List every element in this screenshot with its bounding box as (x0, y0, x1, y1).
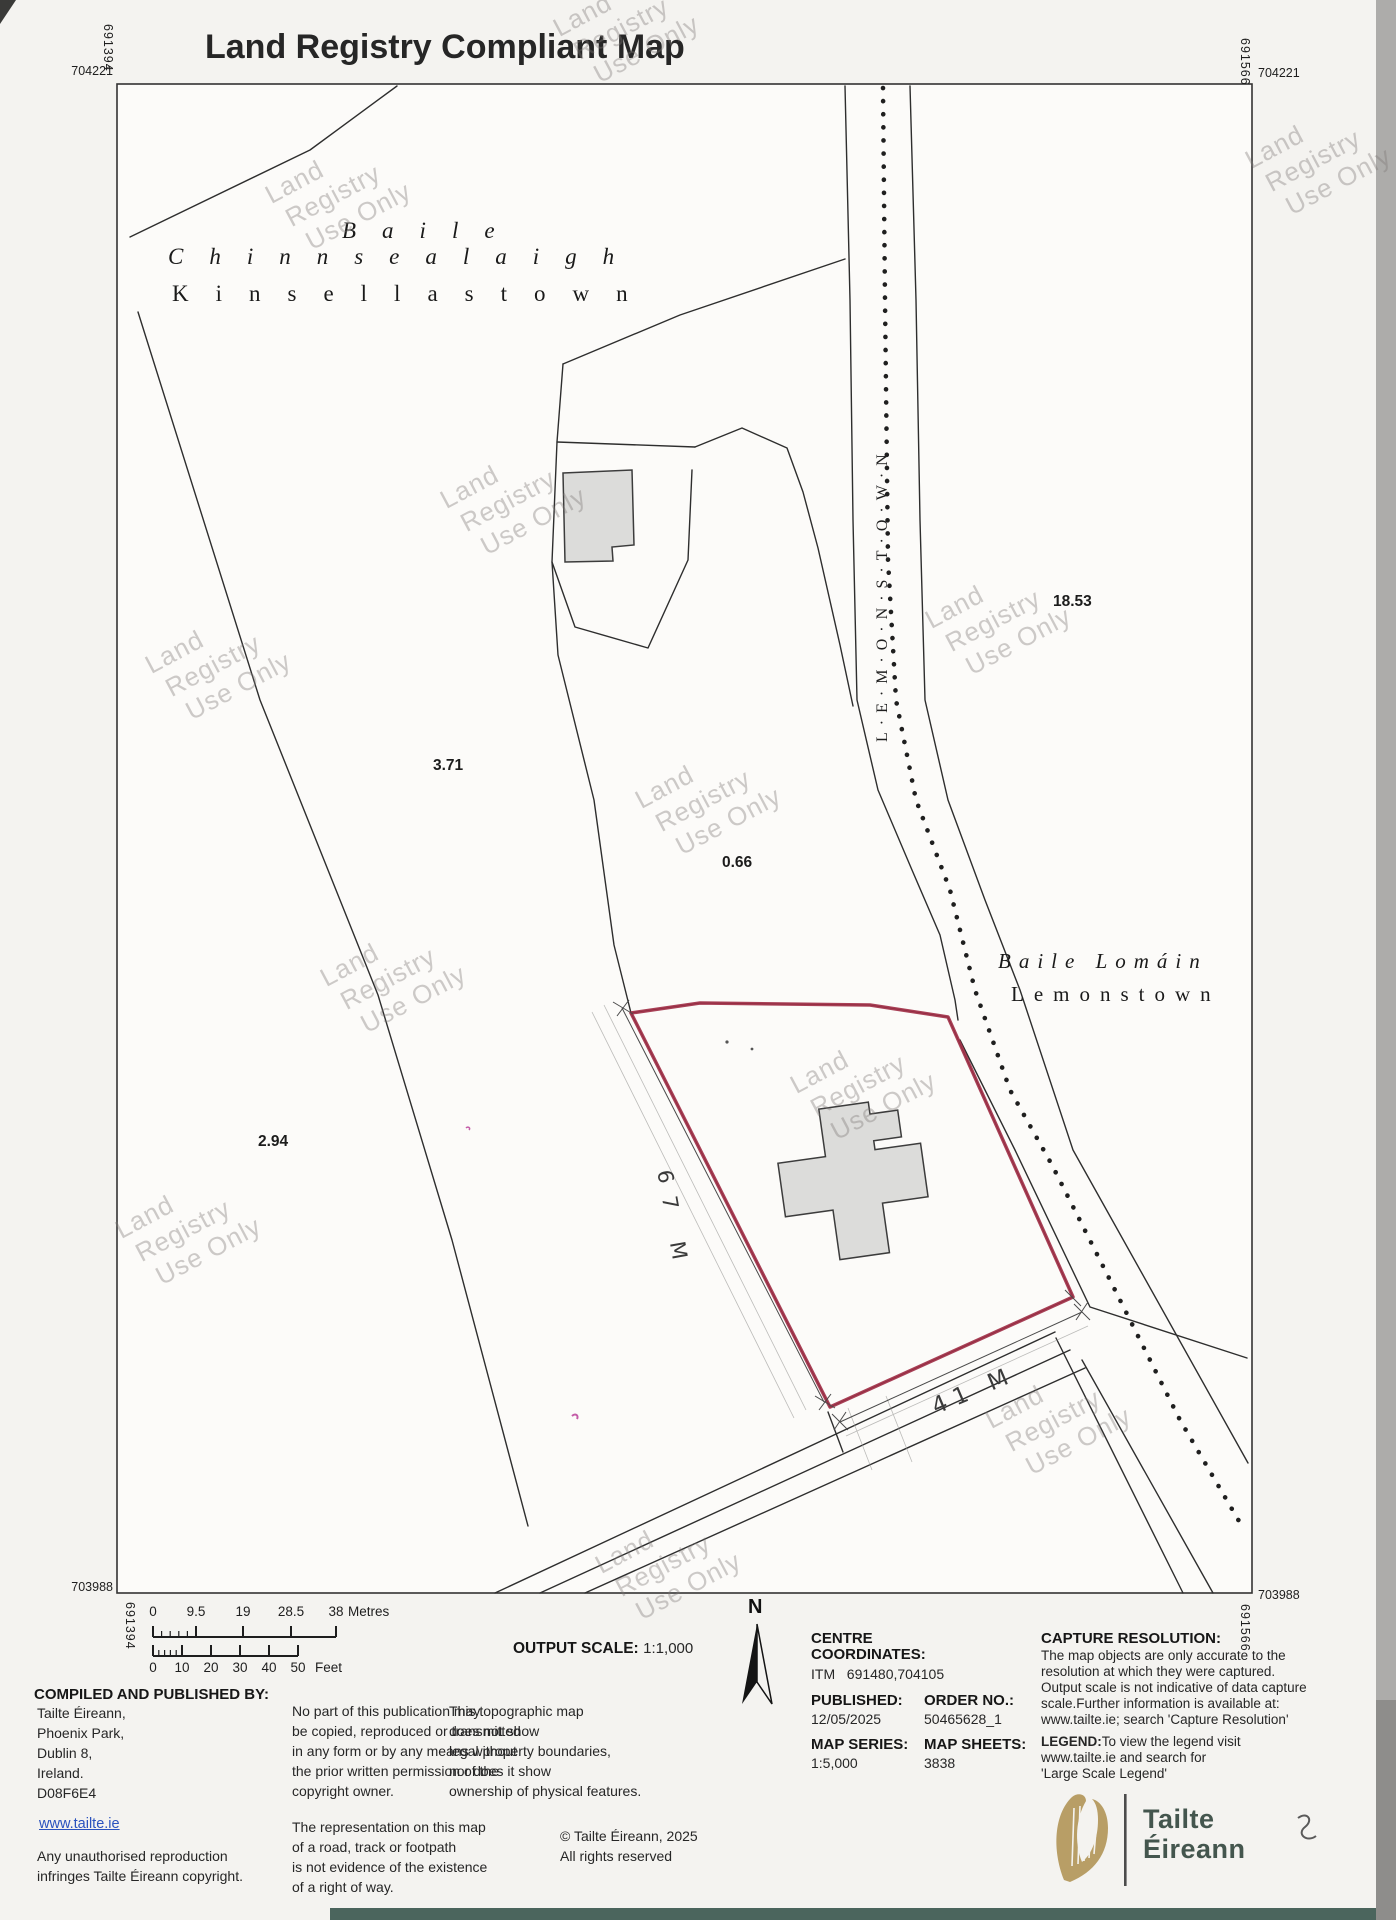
output-scale-value: 1:1,000 (643, 1640, 693, 1657)
published-label: PUBLISHED: (811, 1692, 903, 1709)
output-scale-label: OUTPUT SCALE: (513, 1640, 639, 1657)
order-value: 50465628_1 (924, 1709, 1002, 1729)
representation-line: of a road, track or footpath (292, 1837, 456, 1857)
scanner-edge-band (1376, 0, 1396, 1920)
map-sheets-label: MAP SHEETS: (924, 1736, 1026, 1753)
north-label: N (748, 1596, 762, 1619)
parcel-area-value: 3.71 (433, 757, 463, 775)
publisher-address-line: D08F6E4 (37, 1783, 96, 1803)
grid-easting-bottom-right: 691566 (1238, 1604, 1252, 1652)
no-part-line: copyright owner. (292, 1781, 394, 1801)
grid-northing-bottom-left: 703988 (60, 1580, 113, 1594)
representation-line: of a right of way. (292, 1877, 394, 1897)
centre-header: CENTRE (811, 1630, 873, 1647)
capture-header: CAPTURE RESOLUTION: (1041, 1630, 1221, 1647)
grid-northing-top-left: 704221 (60, 64, 113, 78)
map-series-value: 1:5,000 (811, 1753, 858, 1773)
scalebar-tick-label: 0 (149, 1660, 157, 1675)
parcel-area-value: 18.53 (1053, 593, 1092, 611)
townland-irish-line1: Baile (342, 218, 521, 244)
topographic-line: legal property boundaries, (449, 1741, 611, 1761)
publisher-address-line: Phoenix Park, (37, 1723, 124, 1743)
scalebar-tick-label: 19 (235, 1604, 250, 1619)
scalebar-unit-label: Feet (315, 1660, 342, 1675)
townland-irish-line2: Chinnsealaigh (168, 244, 640, 270)
centre-itm: ITM 691480,704105 (811, 1664, 944, 1684)
scalebar-unit-label: Metres (348, 1604, 389, 1619)
topographic-line: ownership of physical features. (449, 1781, 641, 1801)
representation-line: The representation on this map (292, 1817, 486, 1837)
townland-east-irish: Baile Lomáin (998, 949, 1208, 974)
map-frame (117, 84, 1252, 1593)
scan-corner-artifact (0, 0, 16, 24)
scalebar-tick-label: 28.5 (278, 1604, 304, 1619)
logo-name: Tailte Éireann (1143, 1804, 1246, 1864)
scalebar-tick-label: 0 (149, 1604, 157, 1619)
scalebar-tick-label: 9.5 (187, 1604, 206, 1619)
grid-easting-bottom-left: 691394 (123, 1602, 137, 1650)
grid-northing-top-right: 704221 (1258, 66, 1300, 80)
order-label: ORDER NO.: (924, 1692, 1014, 1709)
map-series-label: MAP SERIES: (811, 1736, 908, 1753)
scalebar-metres (153, 1626, 336, 1637)
topographic-line: does not show (449, 1721, 539, 1741)
capture-line: Output scale is not indicative of data c… (1041, 1680, 1307, 1697)
publisher-address-line: Tailte Éireann, (37, 1703, 126, 1723)
capture-line: www.tailte.ie; search 'Capture Resolutio… (1041, 1712, 1289, 1729)
publisher-address-line: Dublin 8, (37, 1743, 92, 1763)
unauthorised-line: infringes Tailte Éireann copyright. (37, 1866, 243, 1886)
compiled-header: COMPILED AND PUBLISHED BY: (34, 1686, 269, 1703)
topographic-line: This topographic map (449, 1701, 584, 1721)
published-value: 12/05/2025 (811, 1709, 881, 1729)
output-scale: OUTPUT SCALE: 1:1,000 (513, 1639, 693, 1659)
grid-easting-top-right: 691566 (1238, 38, 1252, 86)
logo-divider (1124, 1794, 1127, 1886)
unauthorised-line: Any unauthorised reproduction (37, 1846, 228, 1866)
pen-squiggle (1298, 1815, 1316, 1838)
scanned-map-page: Land Registry Compliant Map 691394 70422… (0, 0, 1396, 1920)
scalebar-tick-label: 10 (174, 1660, 189, 1675)
townland-english: Kinsellastown (172, 281, 655, 307)
page-title: Land Registry Compliant Map (205, 28, 685, 67)
townland-east-english: Lemonstown (1011, 982, 1221, 1007)
scan-bottom-strip (330, 1908, 1376, 1920)
scalebar-tick-label: 38 (328, 1604, 343, 1619)
publisher-address-line: Ireland. (37, 1763, 84, 1783)
scalebar-tick-label: 30 (232, 1660, 247, 1675)
road-name-label: L·E·M·O·N·S·T·O·W·N (874, 447, 892, 742)
harp-icon (1056, 1794, 1108, 1882)
parcel-area-value: 2.94 (258, 1133, 288, 1151)
capture-line: The map objects are only accurate to the (1041, 1648, 1286, 1665)
representation-line: is not evidence of the existence (292, 1857, 487, 1877)
scalebar-tick-label: 20 (203, 1660, 218, 1675)
centre-header2: COORDINATES: (811, 1646, 926, 1663)
topographic-line: nor does it show (449, 1761, 551, 1781)
map-sheets-value: 3838 (924, 1753, 955, 1773)
scalebar-tick-label: 40 (261, 1660, 276, 1675)
website-link[interactable]: www.tailte.ie (39, 1816, 120, 1832)
capture-line: scale.Further information is available a… (1041, 1696, 1280, 1713)
north-arrow-icon (742, 1624, 772, 1704)
grid-northing-bottom-right: 703988 (1258, 1588, 1300, 1602)
scalebar-tick-label: 50 (290, 1660, 305, 1675)
legend-note-line3: 'Large Scale Legend' (1041, 1766, 1167, 1783)
copyright-line: © Tailte Éireann, 2025 (560, 1826, 698, 1846)
capture-line: resolution at which they were captured. (1041, 1664, 1275, 1681)
parcel-area-value: 0.66 (722, 854, 752, 872)
legend-note-line1: LEGEND:To view the legend visit (1041, 1734, 1241, 1751)
copyright-line: All rights reserved (560, 1846, 672, 1866)
scalebar-feet (153, 1645, 298, 1656)
legend-note-line2: www.tailte.ie and search for (1041, 1750, 1206, 1767)
